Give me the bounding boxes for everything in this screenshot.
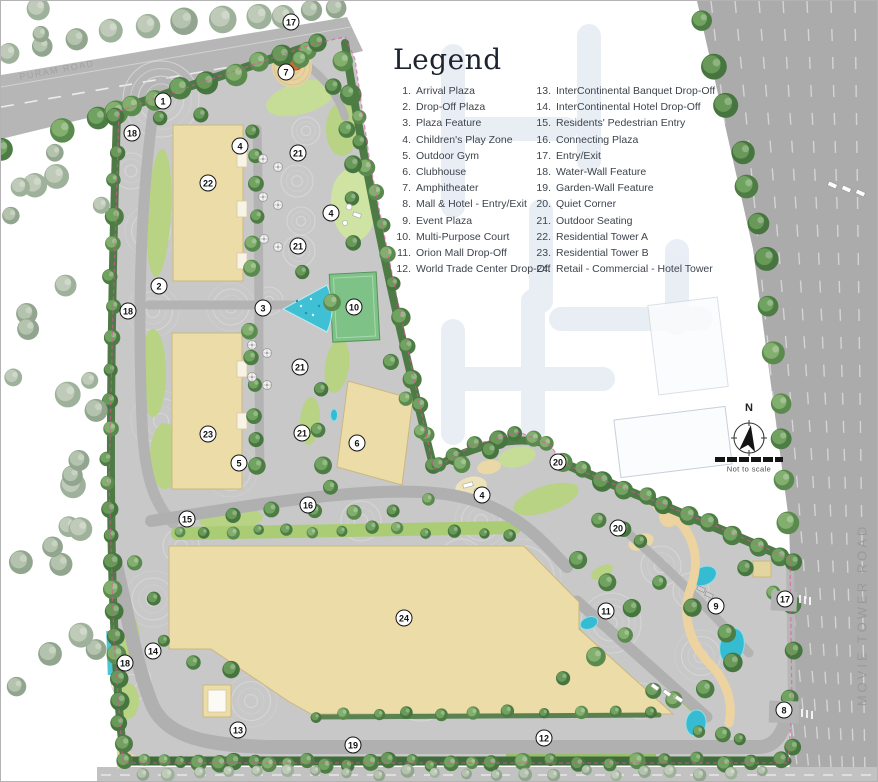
legend-item-number: 22. [529,229,551,245]
legend-item-label: Orion Mall Drop-Off [411,245,507,261]
legend-item-label: Garden-Wall Feature [551,180,654,196]
legend-item: 13.InterContinental Banquet Drop-Off [529,83,715,99]
legend-item-number: 4. [389,132,411,148]
legend-item: 12.World Trade Center Drop-Off [389,261,550,277]
map-marker-21: 21 [290,238,307,255]
legend-item-label: Amphitheater [411,180,478,196]
legend-item: 11.Orion Mall Drop-Off [389,245,550,261]
map-marker-21: 21 [294,425,311,442]
movie-tower-road-label: MOVIE TOWER ROAD [855,524,870,707]
legend-item: 1.Arrival Plaza [389,83,550,99]
legend-item: 16.Connecting Plaza [529,132,715,148]
legend-item-number: 14. [529,99,551,115]
legend-item: 23.Residential Tower B [529,245,715,261]
legend-item-number: 20. [529,196,551,212]
map-marker-18: 18 [124,125,141,142]
legend-item: 21.Outdoor Seating [529,213,715,229]
legend-item-number: 23. [529,245,551,261]
legend-item-number: 13. [529,83,551,99]
legend-item-number: 18. [529,164,551,180]
legend-title: Legend [393,43,502,76]
legend-item-number: 12. [389,261,411,277]
legend-item: 20.Quiet Corner [529,196,715,212]
legend-item-label: Clubhouse [411,164,466,180]
legend-column-1: 1.Arrival Plaza2.Drop-Off Plaza3.Plaza F… [389,83,550,277]
map-marker-18: 18 [120,303,137,320]
legend-item-label: Outdoor Seating [551,213,632,229]
legend-column-2: 13.InterContinental Banquet Drop-Off14.I… [529,83,715,277]
legend-item-number: 15. [529,115,551,131]
map-marker-4: 4 [474,487,491,504]
legend-item-number: 8. [389,196,411,212]
legend-item-label: Drop-Off Plaza [411,99,485,115]
map-marker-23: 23 [200,426,217,443]
scale-note: Not to scale [727,465,771,474]
legend-item-label: Outdoor Gym [411,148,479,164]
legend-item: 6.Clubhouse [389,164,550,180]
legend-item-number: 16. [529,132,551,148]
map-marker-6: 6 [349,435,366,452]
map-marker-7: 7 [278,64,295,81]
legend-item: 4.Children's Play Zone [389,132,550,148]
legend-item-number: 19. [529,180,551,196]
legend-item-label: Water-Wall Feature [551,164,646,180]
map-marker-4: 4 [323,205,340,222]
map-marker-2: 2 [151,278,168,295]
legend-item: 15.Residents' Pedestrian Entry [529,115,715,131]
map-marker-11: 11 [598,603,615,620]
map-marker-5: 5 [231,455,248,472]
legend-item-number: 3. [389,115,411,131]
legend-item-label: Residential Tower B [551,245,649,261]
garden-wall-kiosk [753,561,771,577]
legend-item-number: 9. [389,213,411,229]
map-marker-18: 18 [117,655,134,672]
map-marker-19: 19 [345,737,362,754]
legend-item-label: Arrival Plaza [411,83,475,99]
legend-item: 5.Outdoor Gym [389,148,550,164]
map-marker-8: 8 [776,702,793,719]
legend-item: 8.Mall & Hotel - Entry/Exit [389,196,550,212]
legend-item: 9.Event Plaza [389,213,550,229]
legend-item: 22.Residential Tower A [529,229,715,245]
map-marker-1: 1 [155,93,172,110]
legend-item-number: 11. [389,245,411,261]
scale-bar [715,457,783,462]
map-marker-12: 12 [536,730,553,747]
map-marker-16: 16 [300,497,317,514]
legend-item: 17.Entry/Exit [529,148,715,164]
map-marker-14: 14 [145,643,162,660]
legend-item-number: 6. [389,164,411,180]
legend-item: 18.Water-Wall Feature [529,164,715,180]
legend-item-label: Children's Play Zone [411,132,513,148]
legend-item: 7.Amphitheater [389,180,550,196]
legend-item: 2.Drop-Off Plaza [389,99,550,115]
north-label: N [745,402,753,414]
map-marker-20: 20 [610,520,627,537]
legend-item-label: Event Plaza [411,213,472,229]
map-marker-20: 20 [550,454,567,471]
north-arrow [731,420,767,456]
legend-item: 24.Retail - Commercial - Hotel Tower [529,261,715,277]
map-marker-3: 3 [255,300,272,317]
legend-item-number: 10. [389,229,411,245]
legend-item-number: 17. [529,148,551,164]
legend-item-label: Quiet Corner [551,196,616,212]
map-marker-24: 24 [396,610,413,627]
legend-item-label: Residential Tower A [551,229,648,245]
legend-item-number: 24. [529,261,551,277]
map-marker-4: 4 [232,138,249,155]
legend-item-label: Entry/Exit [551,148,601,164]
legend-item-number: 1. [389,83,411,99]
legend-item-label: Connecting Plaza [551,132,638,148]
map-marker-13: 13 [230,722,247,739]
legend-item-label: Residents' Pedestrian Entry [551,115,685,131]
map-marker-9: 9 [708,598,725,615]
map-marker-10: 10 [346,299,363,316]
legend-item: 14.InterContinental Hotel Drop-Off [529,99,715,115]
legend-item-number: 5. [389,148,411,164]
legend-item: 10.Multi-Purpose Court [389,229,550,245]
map-marker-21: 21 [292,359,309,376]
map-marker-15: 15 [179,511,196,528]
legend-item-label: Plaza Feature [411,115,481,131]
legend-item: 19.Garden-Wall Feature [529,180,715,196]
legend-item-label: Multi-Purpose Court [411,229,509,245]
legend-item-label: Mall & Hotel - Entry/Exit [411,196,527,212]
map-marker-21: 21 [290,145,307,162]
legend-item-label: InterContinental Hotel Drop-Off [551,99,701,115]
legend-item-label: InterContinental Banquet Drop-Off [551,83,715,99]
legend-item-number: 2. [389,99,411,115]
legend-item-number: 21. [529,213,551,229]
map-marker-17: 17 [283,14,300,31]
legend-item: 3.Plaza Feature [389,115,550,131]
legend-item-number: 7. [389,180,411,196]
site-plan-page: Legend 1.Arrival Plaza2.Drop-Off Plaza3.… [0,0,878,782]
map-marker-22: 22 [200,175,217,192]
legend-item-label: Retail - Commercial - Hotel Tower [551,261,713,277]
map-marker-17: 17 [777,591,794,608]
